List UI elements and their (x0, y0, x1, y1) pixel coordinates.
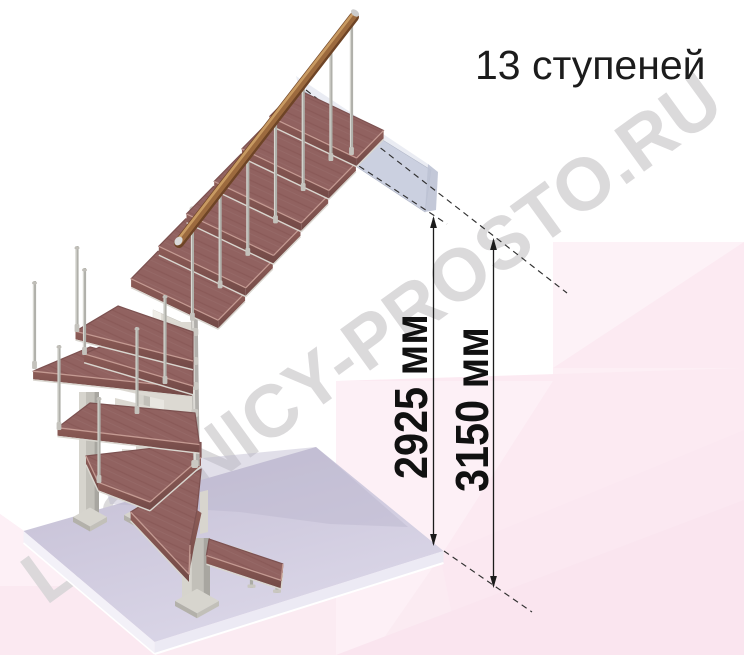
svg-text:13 ступеней: 13 ступеней (475, 42, 706, 88)
svg-text:2925 мм: 2925 мм (386, 314, 438, 479)
svg-text:3150 мм: 3150 мм (447, 327, 499, 492)
